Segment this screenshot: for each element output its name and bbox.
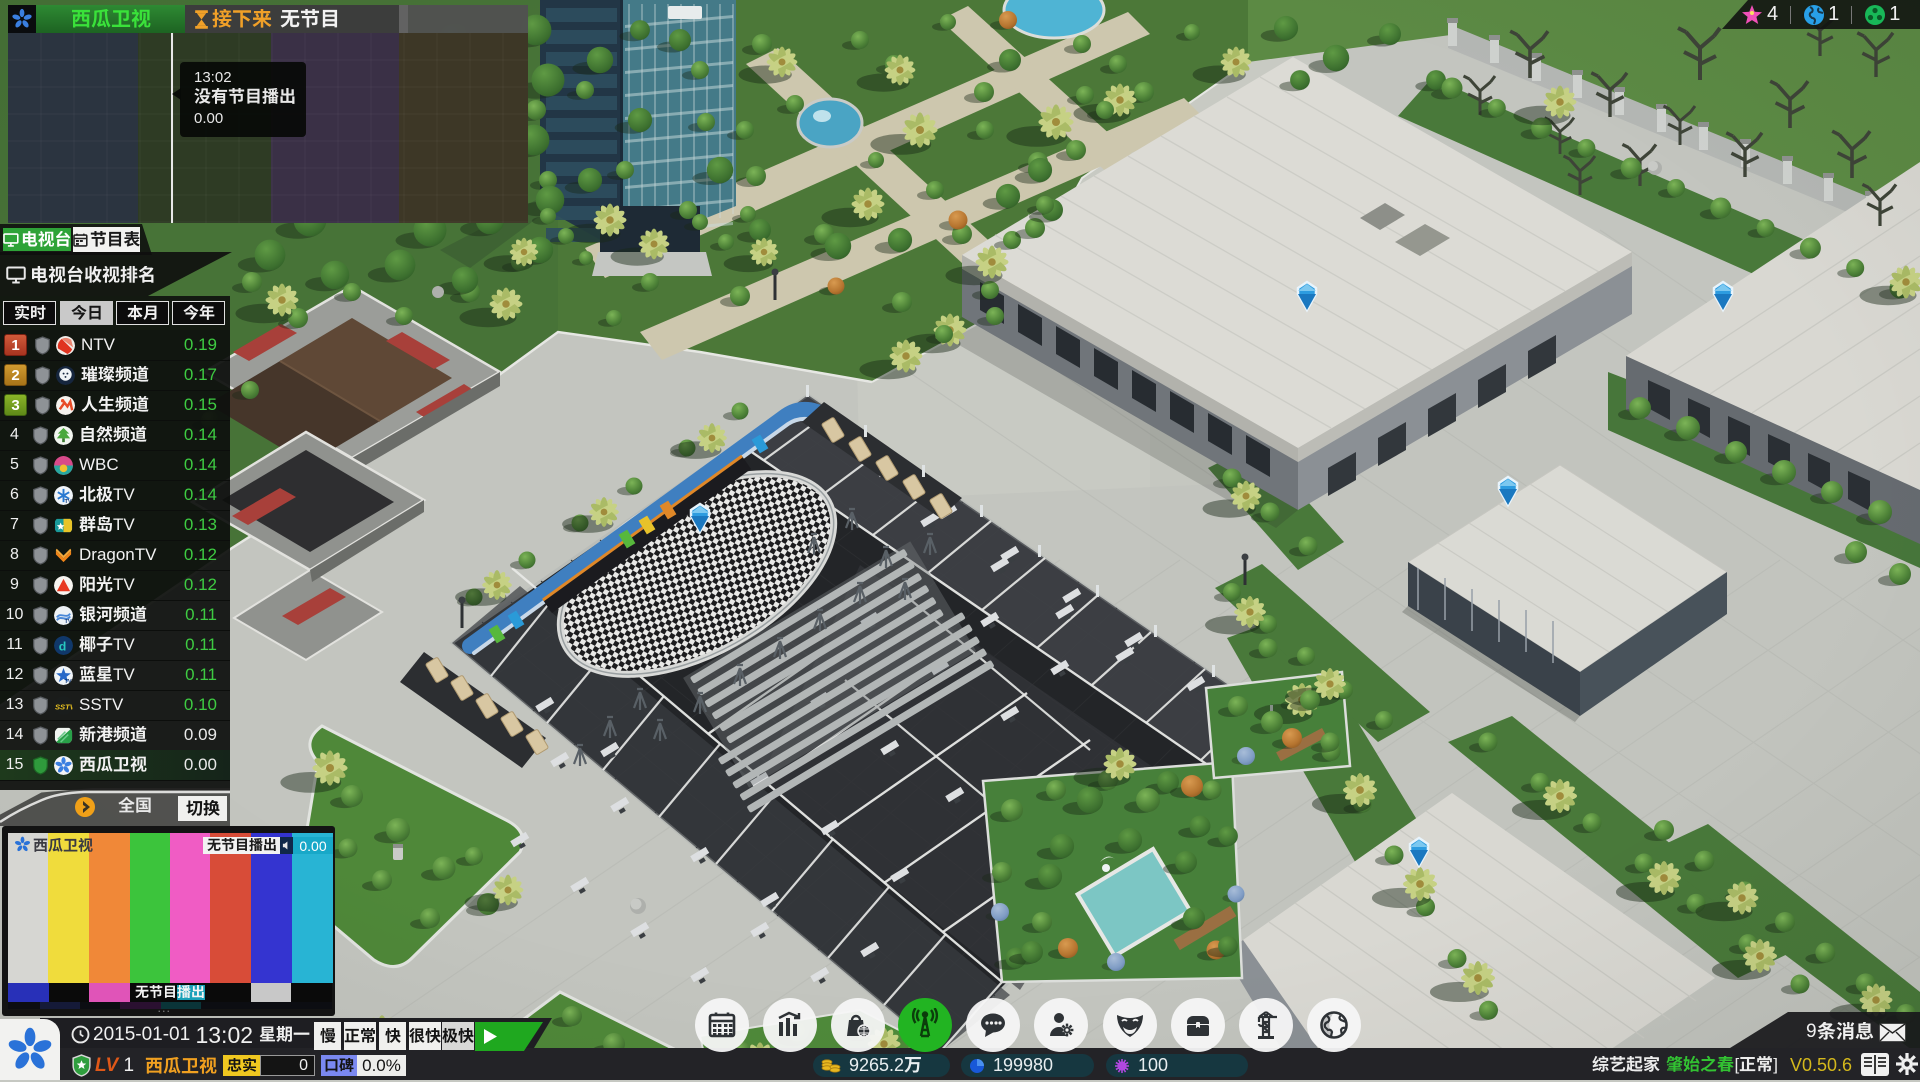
svg-text:d: d	[59, 639, 67, 653]
svg-text:TV: TV	[64, 679, 71, 685]
svg-text:TV: TV	[64, 499, 71, 505]
svg-text:SSTV: SSTV	[55, 702, 73, 711]
svg-text:TV: TV	[64, 619, 71, 625]
